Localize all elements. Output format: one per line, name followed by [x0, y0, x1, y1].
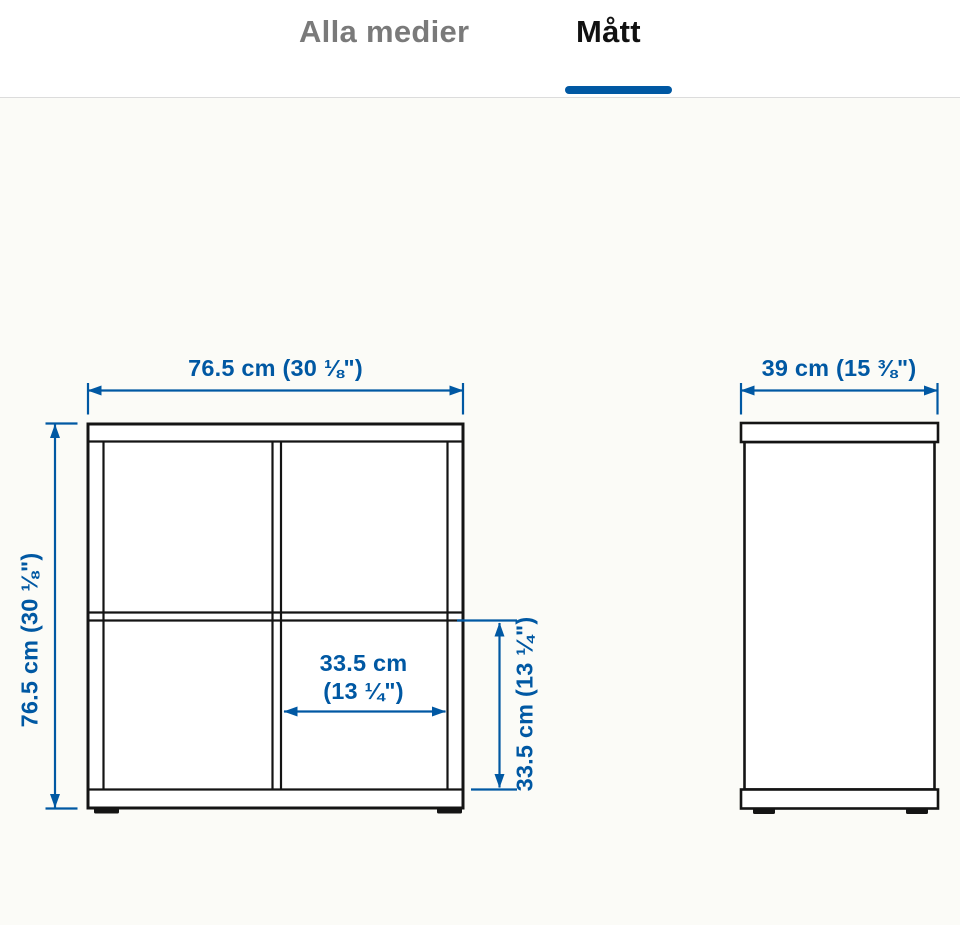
side-view [741, 423, 938, 814]
tab-alla-medier[interactable]: Alla medier [299, 14, 469, 50]
front-view [88, 424, 463, 814]
side-top-panel [741, 423, 938, 442]
front-right-foot [437, 808, 462, 814]
dimensions-diagram: 76.5 cm (30 ⅛") 76.5 cm (30 ⅛") 33.5 cm … [0, 98, 960, 925]
tab-matt[interactable]: Mått [576, 14, 641, 50]
front-outer-frame [88, 424, 463, 808]
side-body [745, 442, 935, 790]
side-depth-dimension: 39 cm (15 ⅜") [741, 355, 938, 415]
tab-bar: Alla medier Mått [0, 0, 960, 98]
front-height-label: 76.5 cm (30 ⅛") [17, 553, 43, 728]
dimensions-drawing-area: 76.5 cm (30 ⅛") 76.5 cm (30 ⅛") 33.5 cm … [0, 98, 960, 925]
front-height-dimension: 76.5 cm (30 ⅛") [17, 424, 78, 809]
front-width-dimension: 76.5 cm (30 ⅛") [88, 355, 463, 415]
inner-height-dimension: 33.5 cm (13 ¼") [457, 617, 538, 792]
active-tab-indicator [565, 86, 672, 94]
side-left-foot [753, 809, 775, 815]
front-width-label: 76.5 cm (30 ⅛") [188, 355, 363, 381]
side-depth-label: 39 cm (15 ⅜") [762, 355, 917, 381]
side-right-foot [906, 809, 928, 815]
inner-width-label-line1: 33.5 cm [320, 650, 408, 676]
side-bottom-panel [741, 790, 938, 809]
inner-width-label-line2: (13 ¼") [323, 678, 403, 704]
front-left-foot [94, 808, 119, 814]
product-dimensions-page: Alla medier Mått [0, 0, 960, 925]
inner-height-label: 33.5 cm (13 ¼") [512, 617, 538, 792]
